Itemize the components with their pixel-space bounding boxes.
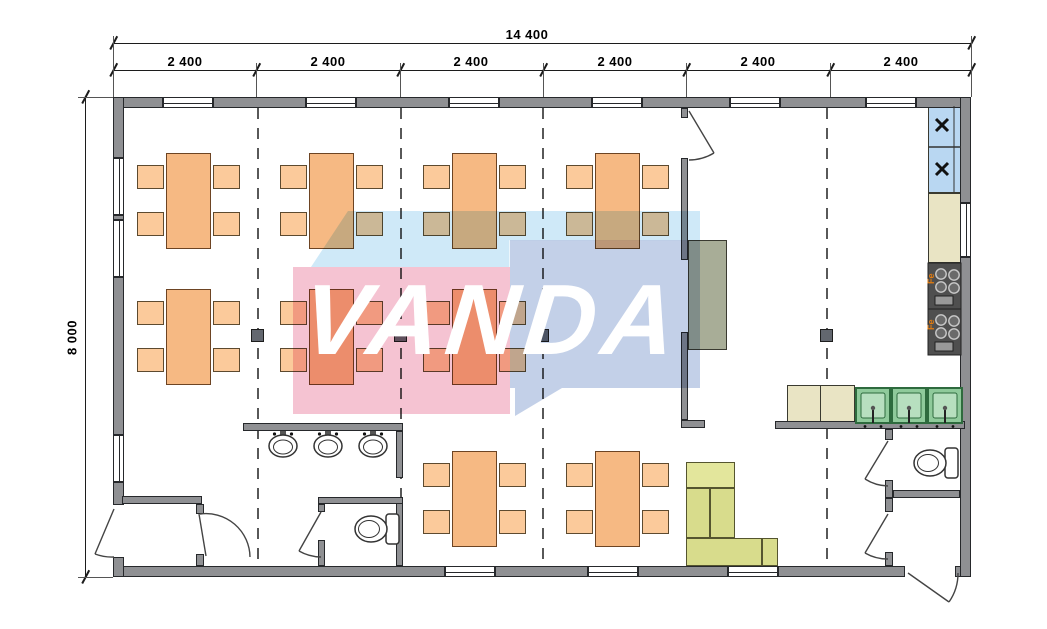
window-icon: [113, 220, 124, 277]
column: [820, 329, 833, 342]
window-glass-line: [307, 103, 355, 104]
extension-line: [113, 36, 114, 97]
stove-icon: Fe: [926, 309, 961, 355]
kitchen-counter: [928, 193, 962, 263]
window-icon: [113, 158, 124, 215]
wall-segment: [196, 554, 204, 566]
window-icon: [306, 97, 356, 108]
wall-segment: [499, 97, 592, 108]
chair: [499, 463, 526, 487]
dim-total-height-label: 8 000: [65, 308, 80, 368]
window-icon: [866, 97, 916, 108]
window-glass-line: [119, 159, 120, 214]
window-glass-line: [446, 572, 494, 573]
door-exterior-right: [908, 573, 958, 602]
dim-total-width-label: 14 400: [477, 27, 577, 42]
dining-table: [166, 289, 211, 385]
window-glass-line: [450, 103, 498, 104]
extension-line: [78, 577, 113, 578]
window-glass-line: [589, 572, 637, 573]
chair: [642, 165, 669, 189]
stove-gas-label: Fe: [926, 319, 936, 330]
chair: [280, 165, 307, 189]
chair: [137, 165, 164, 189]
wall-segment: [638, 566, 728, 577]
chair: [566, 463, 593, 487]
window-icon: [730, 97, 780, 108]
stove-gas-label: Fe: [926, 273, 936, 284]
wall-segment: [396, 497, 403, 566]
window-icon: [960, 203, 971, 257]
chair: [137, 348, 164, 372]
wall-segment: [681, 420, 705, 428]
wall-segment: [885, 429, 893, 440]
chair: [423, 510, 450, 534]
window-icon: [728, 566, 778, 577]
dim-module-label: 2 400: [575, 54, 655, 69]
chair: [499, 165, 526, 189]
window-glass-line: [729, 572, 777, 573]
stove-icon: Fe: [926, 263, 961, 309]
door-vestibule-inner: [199, 514, 250, 557]
wall-segment: [113, 277, 124, 435]
wall-segment: [318, 497, 403, 504]
dim-module-label: 2 400: [718, 54, 798, 69]
kitchen-counter: [787, 385, 855, 423]
extension-line: [686, 63, 687, 97]
wall-segment: [495, 566, 588, 577]
chair: [137, 301, 164, 325]
toilet-icon: [355, 514, 399, 544]
wall-segment: [396, 431, 403, 478]
toilet-icon: [914, 448, 958, 478]
door-dining-to-kitchen: [689, 111, 714, 160]
sofa-seat: [686, 538, 762, 566]
watermark-logo-text: VANDA: [298, 270, 729, 370]
chair: [566, 165, 593, 189]
chair: [213, 212, 240, 236]
chair: [642, 510, 669, 534]
extension-line: [543, 63, 544, 97]
sofa-armrest: [762, 538, 778, 566]
dim-module-label: 2 400: [288, 54, 368, 69]
chair: [566, 510, 593, 534]
dim-module-label: 2 400: [145, 54, 225, 69]
extension-line: [256, 63, 257, 97]
washbasin-icon: [359, 431, 387, 457]
wall-segment: [778, 566, 905, 577]
extension-line: [78, 97, 113, 98]
dim-module-label: 2 400: [431, 54, 511, 69]
dim-module-label: 2 400: [861, 54, 941, 69]
wall-segment: [113, 566, 445, 577]
chair: [499, 510, 526, 534]
wall-segment: [885, 480, 893, 498]
sofa-seat: [686, 488, 710, 538]
window-icon: [592, 97, 642, 108]
washbasin-icon: [314, 431, 342, 457]
window-icon: [588, 566, 638, 577]
dim-line-total-height: [85, 97, 86, 577]
wall-segment: [113, 97, 124, 158]
wall-segment: [775, 421, 965, 429]
extension-line: [400, 63, 401, 97]
window-glass-line: [164, 103, 212, 104]
window-glass-line: [119, 436, 120, 481]
wall-segment: [318, 540, 325, 566]
extension-line: [830, 63, 831, 97]
wall-segment: [885, 552, 893, 566]
chair: [356, 165, 383, 189]
window-glass-line: [731, 103, 779, 104]
chair: [213, 301, 240, 325]
chair: [213, 165, 240, 189]
chair: [137, 212, 164, 236]
chair: [280, 212, 307, 236]
window-glass-line: [867, 103, 915, 104]
wall-segment: [356, 97, 449, 108]
wall-segment: [885, 498, 893, 512]
counter-divider: [820, 385, 821, 423]
chair: [423, 463, 450, 487]
chair: [642, 463, 669, 487]
wall-segment: [893, 490, 960, 498]
sofa-backrest: [686, 462, 735, 488]
wall-segment: [122, 496, 202, 504]
door-exterior-left: [95, 509, 114, 557]
dining-table: [452, 451, 497, 547]
dim-line-total-width: [113, 43, 971, 44]
window-icon: [449, 97, 499, 108]
window-icon: [445, 566, 495, 577]
wall-segment: [243, 423, 403, 431]
chair: [423, 165, 450, 189]
watermark-arrow: [515, 388, 562, 416]
wall-segment: [113, 557, 124, 577]
washbasin-icon: [269, 431, 297, 457]
wall-segment: [318, 504, 325, 512]
wall-segment: [681, 108, 688, 118]
wall-segment: [960, 97, 971, 203]
dining-table: [595, 451, 640, 547]
window-icon: [163, 97, 213, 108]
chair: [213, 348, 240, 372]
sofa-seat: [710, 488, 735, 538]
column: [251, 329, 264, 342]
window-icon: [113, 435, 124, 482]
wall-segment: [213, 97, 306, 108]
fridge: [928, 105, 962, 193]
window-glass-line: [966, 204, 967, 256]
wall-segment: [780, 97, 866, 108]
window-glass-line: [593, 103, 641, 104]
extension-line: [971, 36, 972, 97]
wall-segment: [960, 257, 971, 577]
window-glass-line: [119, 221, 120, 276]
wall-segment: [642, 97, 730, 108]
floor-plan-canvas: 14 400 2 400 2 400 2 400 2 400 2 400 2 4…: [0, 0, 1047, 629]
dining-table: [166, 153, 211, 249]
wall-segment: [196, 504, 204, 514]
